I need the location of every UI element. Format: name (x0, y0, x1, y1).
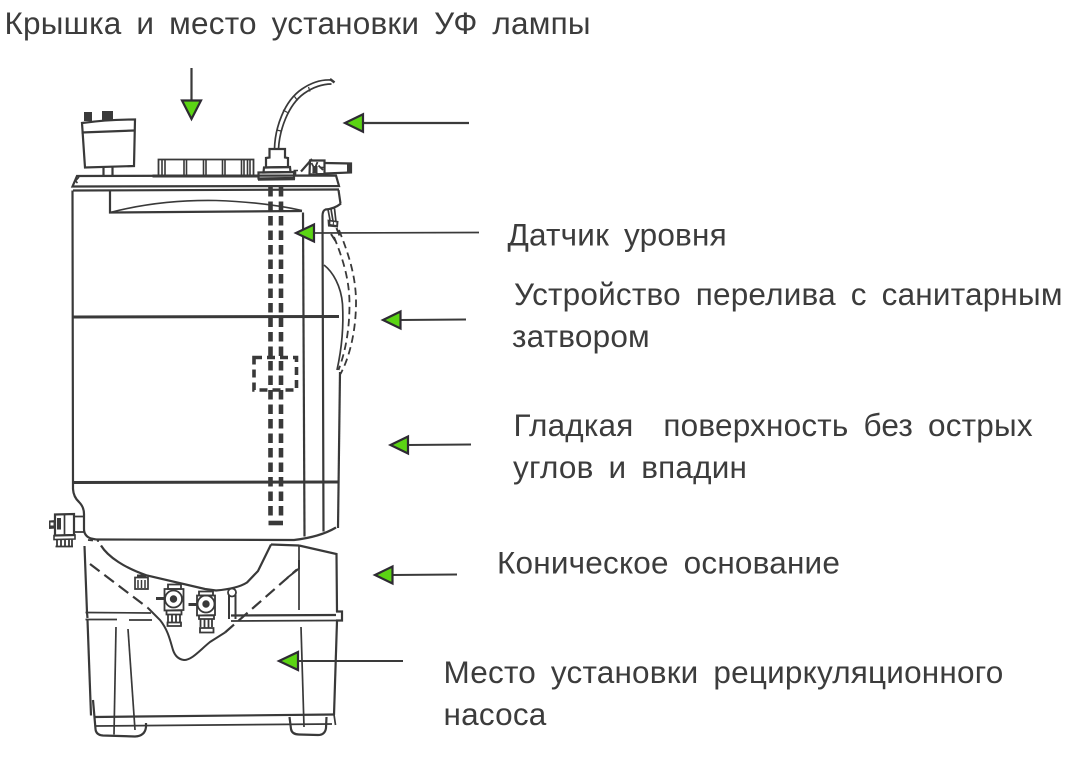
svg-text:Крышка и место установки УФ ла: Крышка и место установки УФ лампы (5, 5, 591, 41)
svg-text:Место установки рециркуляционн: Место установки рециркуляционного (444, 654, 1004, 690)
svg-text:Устройство перелива с санитарн: Устройство перелива с санитарным (514, 276, 1063, 312)
svg-text:Датчик уровня: Датчик уровня (508, 217, 727, 253)
svg-text:Гладкая поверхность без остры: Гладкая поверхность без острых (514, 407, 1033, 443)
svg-text:углов и впадин: углов и впадин (513, 449, 747, 485)
svg-text:Коническое основание: Коническое основание (497, 545, 840, 581)
svg-text:затвором: затвором (512, 318, 650, 354)
svg-text:насоса: насоса (444, 696, 547, 732)
